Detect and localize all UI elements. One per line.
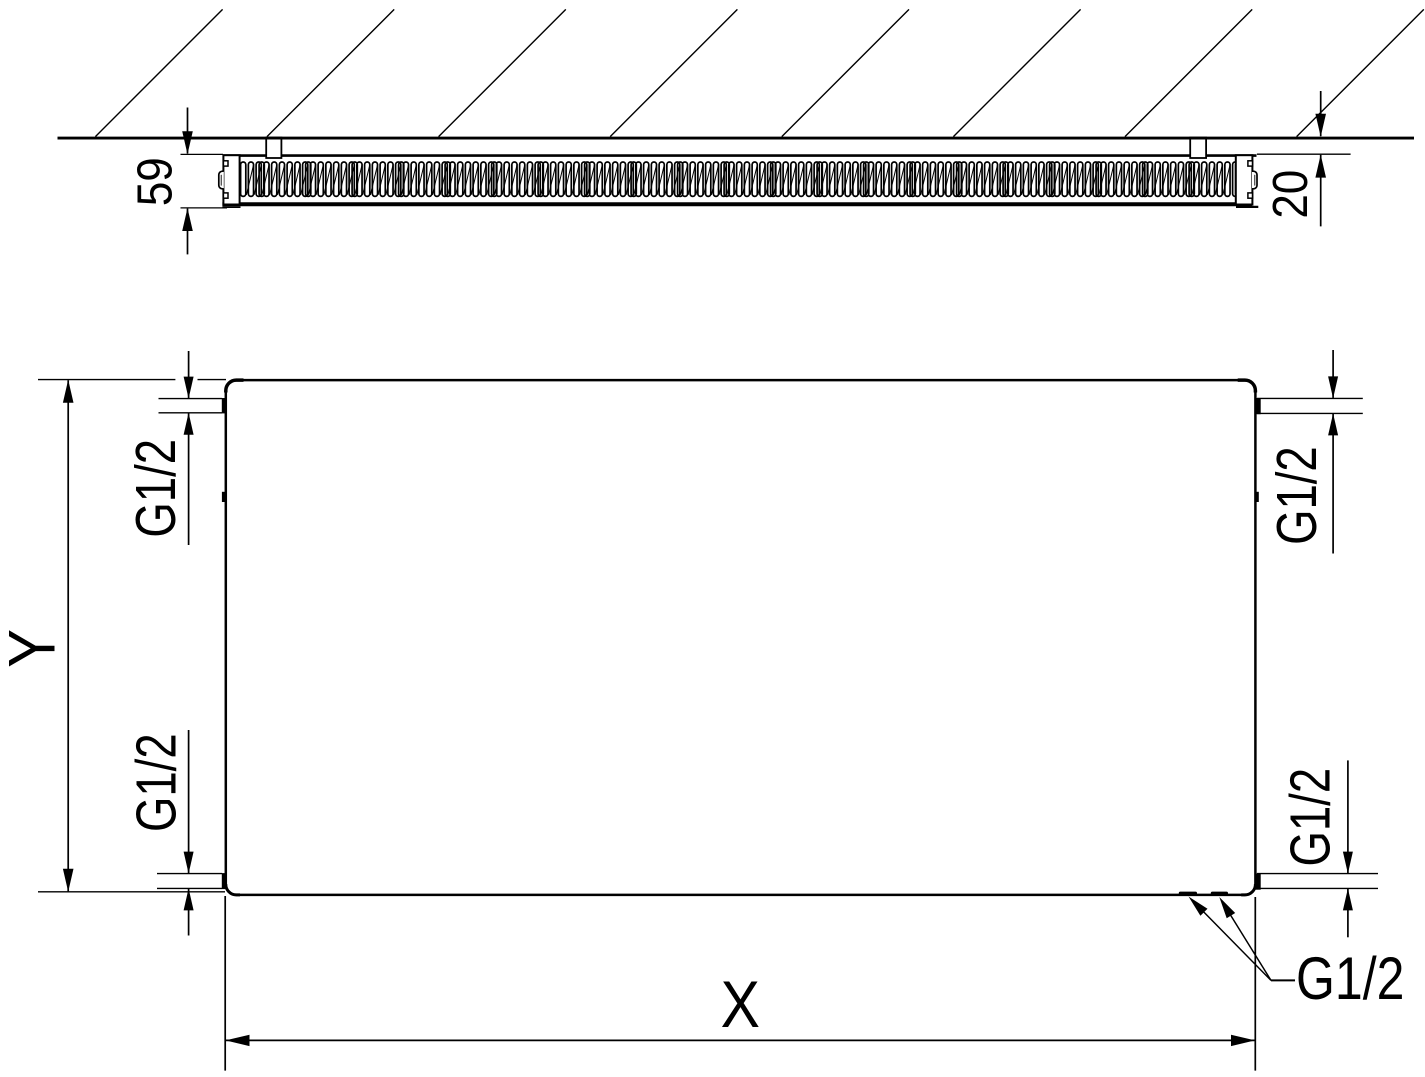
svg-text:59: 59 — [127, 157, 182, 206]
svg-text:G1/2: G1/2 — [1278, 768, 1342, 867]
svg-text:G1/2: G1/2 — [1296, 945, 1404, 1012]
svg-text:Y: Y — [0, 629, 69, 668]
svg-text:G1/2: G1/2 — [123, 733, 187, 832]
svg-text:G1/2: G1/2 — [1264, 446, 1328, 545]
svg-text:G1/2: G1/2 — [123, 439, 187, 538]
svg-text:X: X — [721, 969, 760, 1042]
svg-text:20: 20 — [1263, 170, 1318, 219]
